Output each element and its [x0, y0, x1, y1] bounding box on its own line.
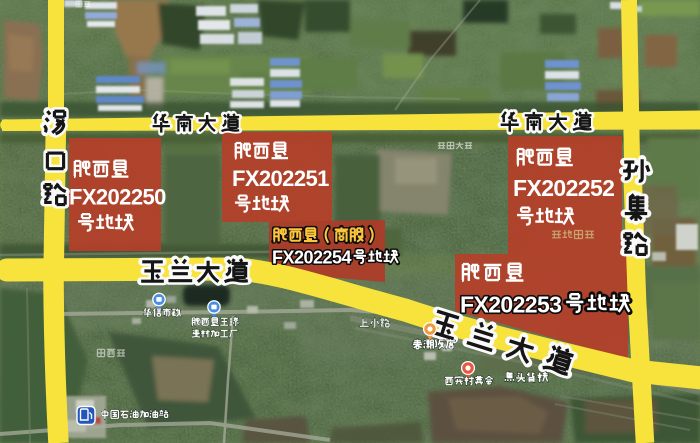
svg-text:FX202254: FX202254 — [272, 248, 352, 268]
svg-text:FX202253: FX202253 — [460, 292, 561, 318]
svg-text:FX202252: FX202252 — [513, 175, 614, 201]
svg-text:FX202251: FX202251 — [232, 166, 329, 191]
svg-text:FX202250: FX202250 — [69, 185, 166, 210]
